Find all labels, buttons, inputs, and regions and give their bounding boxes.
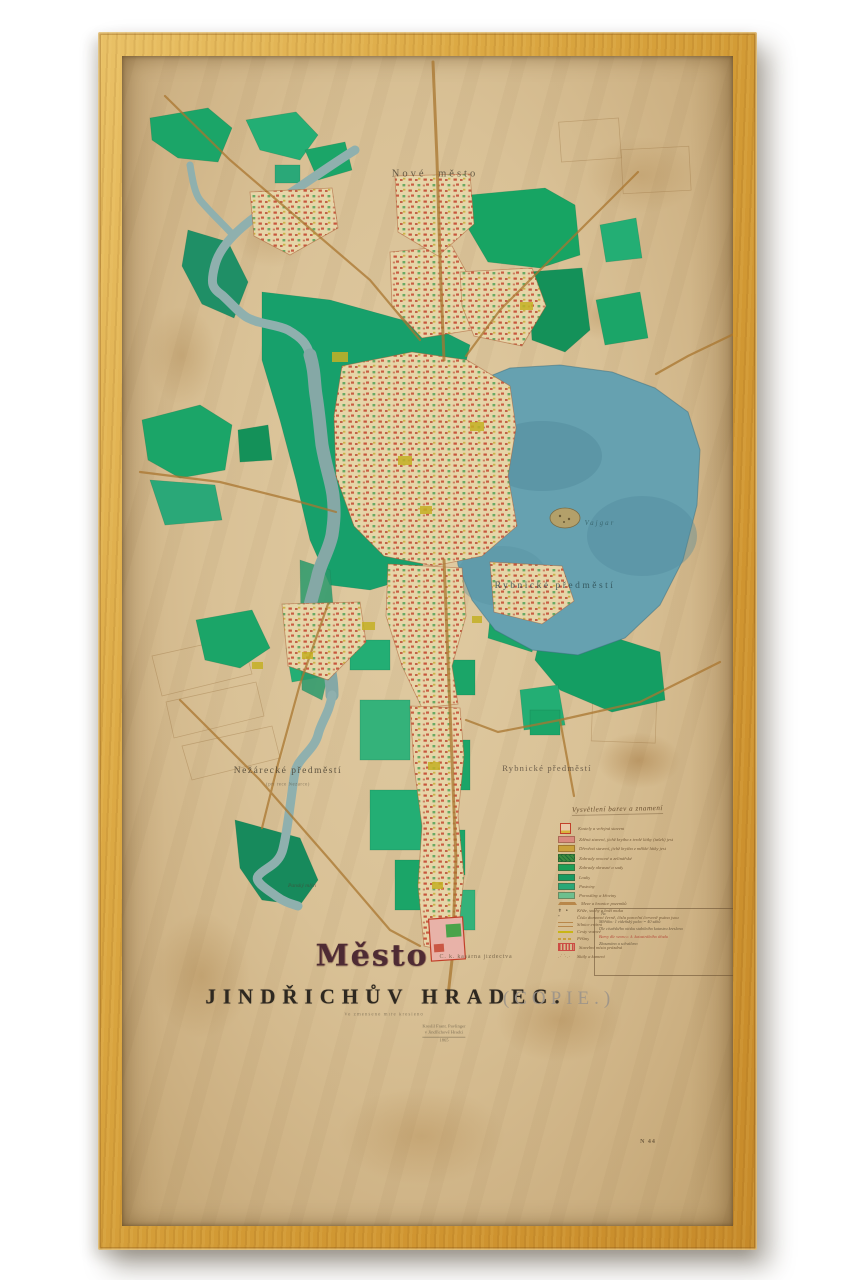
signature-line: v Jindřichově Hradci [422, 1030, 465, 1038]
legend-swatch-line-double [558, 922, 573, 927]
label-mill: Panský mlýn [288, 883, 316, 889]
legend-row: Zděná stavení, jichž krytba z tvrdé látk… [558, 836, 733, 843]
legend-label: Zahrady ovocné a zelinářské [579, 856, 632, 861]
legend-heading: Vysvětlení barev a znamení [572, 804, 663, 816]
legend-label: Porostliny a křoviny [579, 893, 616, 898]
legend-swatch-swatch-speckle [558, 854, 575, 862]
legend-label: Meze a hranice pozemků [581, 901, 627, 906]
map-title-gothic: Město [315, 939, 428, 974]
legend-swatch-line [558, 931, 573, 933]
legend-row: Meze a hranice pozemků [558, 901, 733, 906]
legend-row: Louky [558, 874, 733, 881]
legend-row: Kostely a veřejná stavení [558, 823, 733, 834]
legend-swatch-glyph-building [560, 823, 571, 834]
legend-row: Porostliny a křoviny [558, 892, 733, 899]
legend-label: Dřevěná stavení, jichž krytba z měkké lá… [579, 846, 666, 851]
note-line: Barvy dle vzoru c. k. katastrálního úřad… [599, 934, 729, 939]
legend-row: Zahrady okrasné a sady [558, 864, 733, 871]
legend-label: Pěšiny [577, 936, 589, 941]
legend-swatch-swatch [558, 845, 575, 852]
note-line: Zkoumáno a schváleno [599, 941, 729, 946]
label-nezarecke-sub: (při řece Nežárce) [266, 783, 310, 788]
label-lake-vajgar: Vajgar [585, 519, 616, 527]
photo-background: Nové město Rybnické předměstí Vajgar Než… [0, 0, 853, 1280]
wooden-frame: Nové město Rybnické předměstí Vajgar Než… [98, 32, 757, 1250]
legend-label: Zděná stavení, jichž krytba z tvrdé látk… [579, 837, 673, 842]
map-title-copy: (COPIE.) [503, 988, 615, 1010]
label-nezarecke-predmesti: Nežárecké předměstí [234, 766, 342, 776]
legend-swatch-glyph-dots: ✝ ⚬ ▫ [558, 908, 573, 913]
legend-row: Dřevěná stavení, jichž krytba z měkké lá… [558, 845, 733, 852]
legend-label: Zahrady okrasné a sady [579, 865, 623, 870]
legend-swatch-swatch [558, 892, 575, 899]
legend-label: Pastviny [579, 884, 595, 889]
map-subtitle-small: Ve zmenšené míře kresleno [344, 1013, 424, 1018]
legend-swatch-swatch [558, 874, 575, 881]
legend-swatch-line-dashed [558, 938, 573, 940]
map-signature: Kreslil Frant. Pavlinger v Jindřichově H… [422, 1024, 465, 1045]
note-line: Dle císařského otisku stabilního katastr… [599, 926, 729, 931]
note-number-mark: № [601, 912, 729, 917]
legend-note-box: № Měřítko: 1 vídeňský palec = 40 sáhůDle… [594, 908, 733, 976]
signature-line: 1865 [422, 1038, 465, 1044]
note-line: Měřítko: 1 vídeňský palec = 40 sáhů [599, 919, 729, 924]
legend-swatch-hatch [558, 943, 575, 951]
legend-swatch-wedge [558, 902, 577, 905]
legend-swatch-swatch [558, 883, 575, 890]
legend-row: Zahrady ovocné a zelinářské [558, 854, 733, 862]
inventory-mark: N 44 [640, 1139, 656, 1145]
legend-label: Kostely a veřejná stavení [578, 826, 624, 831]
legend-label: Louky [579, 875, 590, 880]
legend-row: Pastviny [558, 883, 733, 890]
label-barracks: C. k. kasárna jízdectva [440, 954, 513, 960]
lake-island [550, 508, 580, 528]
legend-swatch-scatter: ⋰⋱⋅ [558, 954, 573, 959]
label-nove-mesto: Nové město [392, 169, 478, 180]
legend-swatch-swatch [558, 836, 575, 843]
map-artwork [122, 56, 733, 1226]
label-rybnicke-predmesti-lake: Rybnické předměstí [495, 581, 616, 591]
legend-swatch-swatch [558, 864, 575, 871]
label-rybnicke-predmesti: Rybnické předměstí [502, 763, 591, 773]
note-lines: Měřítko: 1 vídeňský palec = 40 sáhůDle c… [599, 919, 729, 947]
river [190, 150, 355, 906]
map-canvas: Nové město Rybnické předměstí Vajgar Než… [122, 56, 733, 1226]
